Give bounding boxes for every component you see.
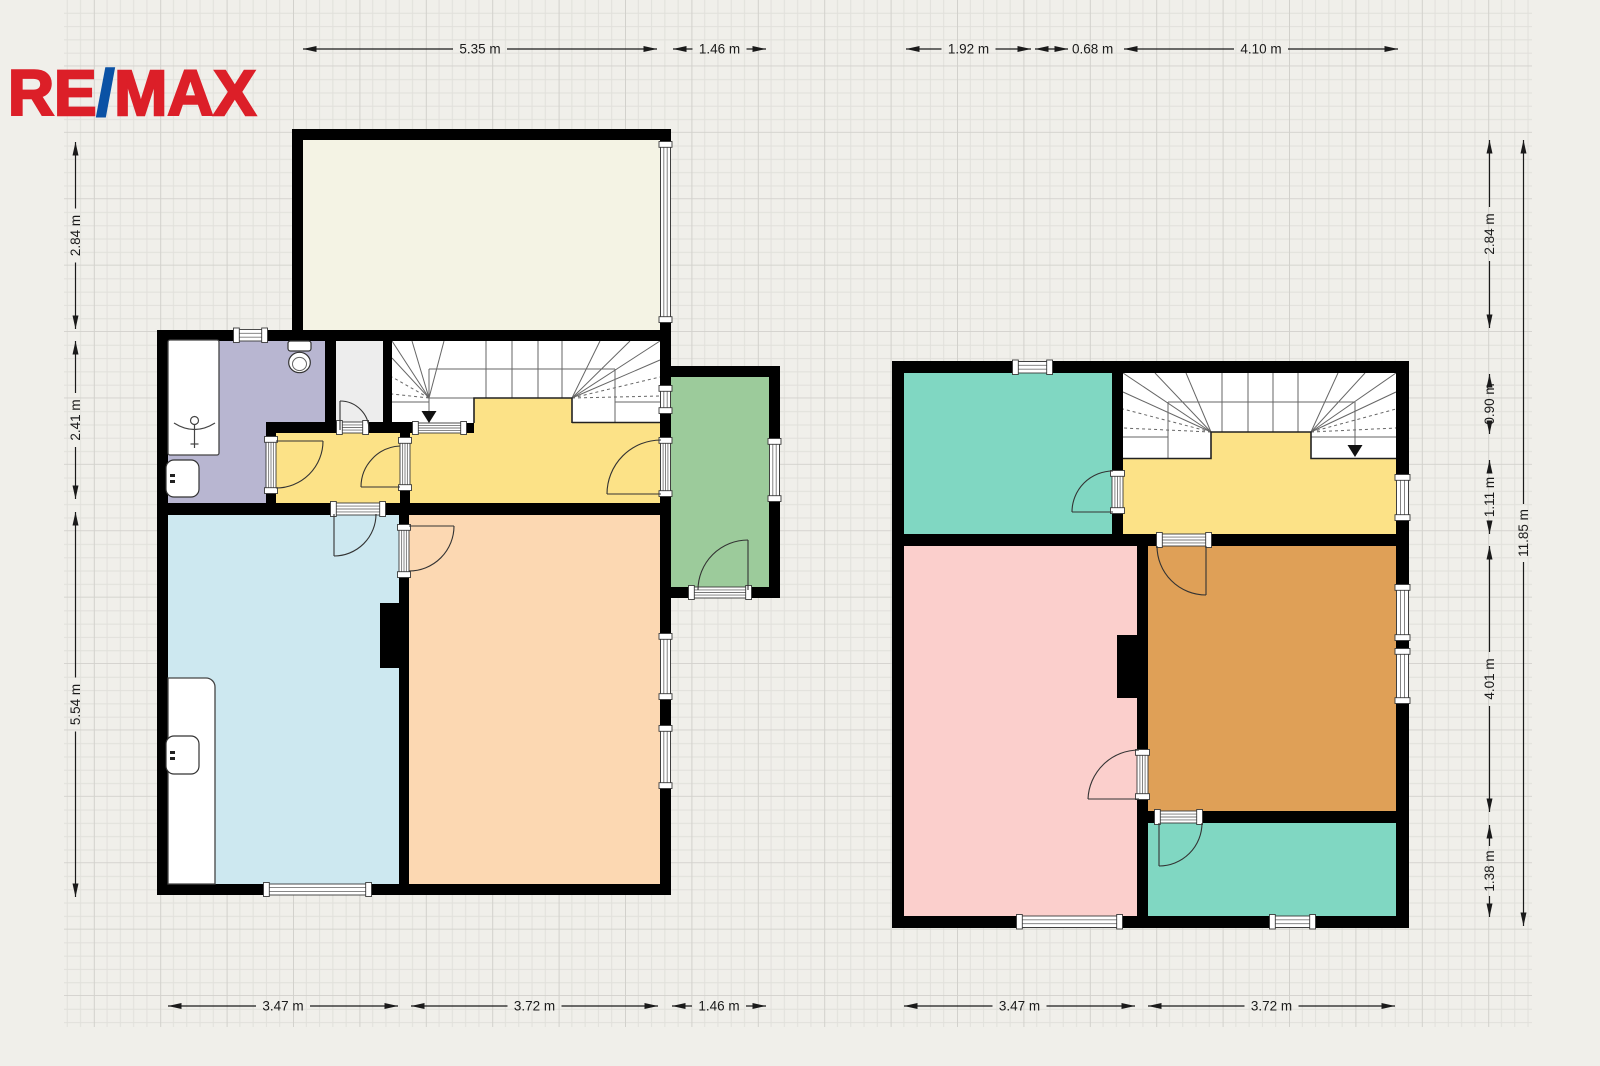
svg-text:1.11 m: 1.11 m: [1482, 477, 1497, 517]
svg-text:11.85 m: 11.85 m: [1516, 509, 1531, 557]
svg-text:1.92 m: 1.92 m: [948, 42, 989, 57]
svg-text:4.10 m: 4.10 m: [1240, 42, 1281, 57]
svg-text:3.47 m: 3.47 m: [999, 999, 1040, 1014]
svg-text:2.84 m: 2.84 m: [1482, 213, 1497, 254]
svg-text:1.46 m: 1.46 m: [698, 999, 739, 1014]
svg-text:1.46 m: 1.46 m: [699, 42, 740, 57]
svg-text:0.68 m: 0.68 m: [1072, 42, 1113, 57]
svg-text:2.41 m: 2.41 m: [68, 399, 83, 440]
svg-text:5.35 m: 5.35 m: [459, 42, 500, 57]
svg-text:0.90 m: 0.90 m: [1482, 383, 1497, 424]
svg-text:3.72 m: 3.72 m: [1251, 999, 1292, 1014]
svg-text:1.38 m: 1.38 m: [1482, 850, 1497, 891]
svg-text:4.01 m: 4.01 m: [1482, 658, 1497, 699]
svg-text:5.54 m: 5.54 m: [68, 684, 83, 725]
svg-text:2.84 m: 2.84 m: [68, 215, 83, 256]
svg-text:3.47 m: 3.47 m: [262, 999, 303, 1014]
svg-text:3.72 m: 3.72 m: [514, 999, 555, 1014]
svg-text:RE/MAX: RE/MAX: [8, 57, 256, 129]
